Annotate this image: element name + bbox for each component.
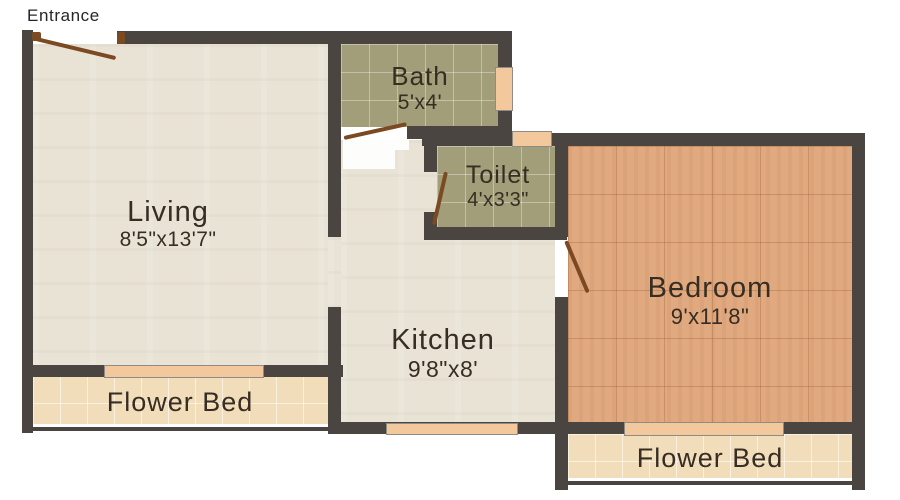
flower-bed-right-edge-line	[568, 481, 852, 485]
entrance-door-jamb-right	[117, 32, 125, 44]
wall-bedroom-top	[555, 133, 865, 146]
toilet-top-window	[512, 131, 552, 147]
bath-door-threshold	[343, 140, 395, 169]
wall-bedroom-left-lower	[555, 297, 568, 434]
flower-bed-left-edge-line	[33, 427, 328, 431]
floor-plan: Entrance Living 8'5"x13'7" Bath	[0, 0, 900, 500]
flower-bed-left-floor	[33, 376, 328, 424]
wall-top	[117, 31, 512, 44]
bedroom-flowerbed-window	[624, 422, 784, 436]
toilet-floor	[437, 146, 555, 228]
bath-door-threshold-step	[395, 140, 409, 150]
kitchen-bottom-window	[386, 423, 518, 435]
bath-floor	[341, 44, 498, 127]
wall-bedroom-left-upper	[555, 133, 568, 237]
flower-bed-right-floor	[568, 434, 852, 478]
living-flowerbed-window	[104, 365, 264, 378]
wall-living-right-upper	[328, 44, 341, 237]
wall-flower-bed-right-left	[555, 422, 568, 490]
wall-bedroom-right	[852, 133, 865, 490]
bath-right-window	[495, 67, 513, 111]
wall-toilet-bottom	[424, 227, 567, 240]
wall-toilet-left-upper	[424, 133, 437, 172]
living-kitchen-passage-floor	[328, 237, 341, 307]
living-room-floor	[33, 44, 328, 365]
entrance-label: Entrance	[27, 6, 100, 26]
bedroom-floor	[568, 146, 852, 422]
